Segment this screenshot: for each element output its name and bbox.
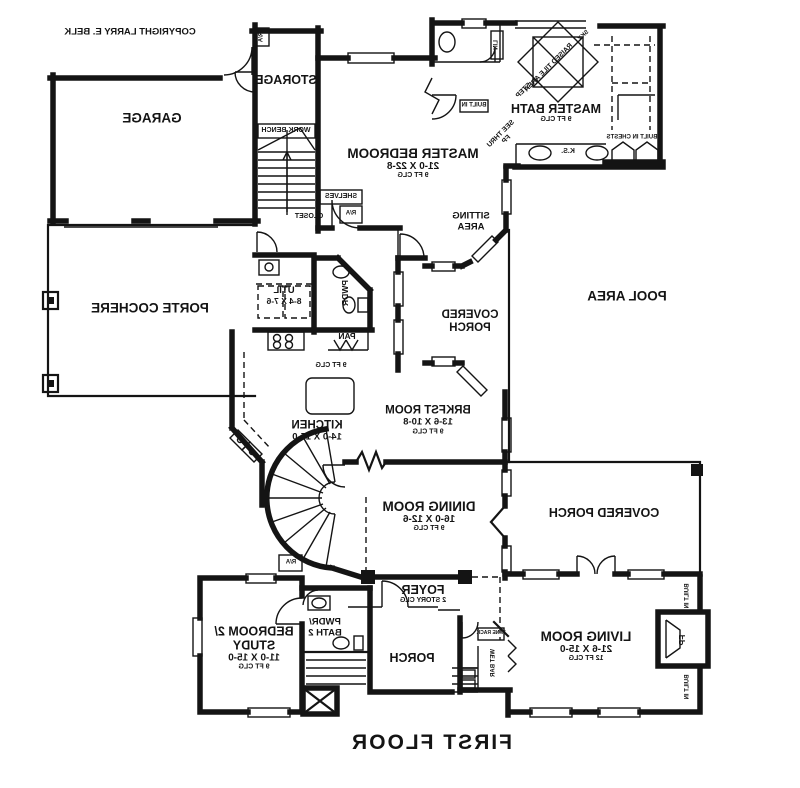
room-name: FOYER bbox=[400, 583, 446, 597]
label-bath2: PWDR/ BATH 2 bbox=[308, 617, 342, 638]
label-covered-porch-rear: COVERED PORCH bbox=[549, 506, 659, 520]
label-shelves: SHELVES bbox=[325, 193, 357, 201]
room-name: DINING ROOM bbox=[383, 499, 476, 514]
label-master-bedroom: MASTER BEDROOM 21-0 X 22-8 9 FT CLG bbox=[347, 146, 478, 180]
label-fp: FP bbox=[678, 635, 688, 646]
kitchen-counter bbox=[244, 352, 270, 448]
label-kitchen: KITCHEN 14-0 X 15-0 bbox=[291, 419, 342, 443]
label-kitchen-clg: 9 FT CLG bbox=[315, 362, 346, 370]
label-bedroom2: BEDROOM 2/ STUDY 11-0 X 15-0 9 FT CLG bbox=[214, 624, 293, 671]
label-brkfst: BRKFST ROOM 13-6 X 10-8 9 FT CLG bbox=[385, 404, 471, 435]
label-covered-porch-side: COVERED PORCH bbox=[442, 309, 499, 335]
label-master-bath: MASTER BATH 9 FT CLG bbox=[511, 102, 601, 124]
label-foyer: FOYER 2 STORY CLG bbox=[400, 583, 446, 605]
label-ra-storage: R/A bbox=[259, 32, 266, 42]
master-bath-walls bbox=[432, 20, 663, 167]
room-name: MASTER BEDROOM bbox=[347, 146, 478, 161]
room-name2: STUDY bbox=[214, 638, 293, 652]
room-name: BRKFST ROOM bbox=[385, 404, 471, 417]
label-ra-closet: R/A bbox=[346, 211, 356, 218]
room-clg: 12 FT CLG bbox=[541, 655, 632, 663]
master-bedroom-walls bbox=[318, 58, 435, 228]
master-closet-rods bbox=[594, 36, 655, 130]
sitting-line2: AREA bbox=[452, 222, 489, 233]
label-built-in-top: BUILT IN bbox=[685, 584, 692, 609]
kitchen-walls bbox=[232, 332, 262, 505]
room-dims: 11-0 X 15-0 bbox=[214, 652, 293, 663]
porch-line2: PORCH bbox=[442, 322, 499, 335]
room-name1: BEDROOM 2/ bbox=[214, 624, 293, 638]
room-clg: 9 FT CLG bbox=[383, 525, 476, 533]
label-built-in-chests: BUILT IN CHESTS bbox=[607, 135, 658, 142]
master-bedroom-details bbox=[332, 53, 439, 228]
porch-post bbox=[691, 464, 703, 476]
rear-porch-details bbox=[523, 556, 664, 579]
room-dims: 21-0 X 22-8 bbox=[347, 161, 478, 172]
room-name2: BATH 2 bbox=[308, 628, 342, 639]
floor-plan-sheet: COPYRIGHT LARRY E. BELK GARAGE STORAGE W… bbox=[0, 0, 800, 788]
label-porte-cochere: PORTE COCHERE bbox=[91, 300, 209, 315]
label-pan: PAN bbox=[338, 332, 355, 342]
room-clg: 9 FT CLG bbox=[385, 428, 471, 436]
room-clg: 2 STORY CLG bbox=[400, 597, 446, 605]
label-sitting-area: SITTING AREA bbox=[452, 211, 489, 232]
plan-title: FIRST FLOOR bbox=[350, 731, 512, 755]
room-name: LIVING ROOM bbox=[541, 629, 632, 644]
label-porch: PORCH bbox=[389, 651, 434, 665]
room-clg: 9 FT CLG bbox=[511, 116, 601, 124]
label-ra-stair: R/A bbox=[286, 560, 296, 567]
label-wine-rack: WINE RACK bbox=[477, 631, 506, 637]
room-dims: 14-0 X 15-0 bbox=[291, 432, 342, 443]
room-dims: 13-6 X 10-8 bbox=[385, 417, 471, 428]
label-pool-area: POOL AREA bbox=[587, 288, 667, 303]
label-living: LIVING ROOM 21-6 X 15-0 12 FT CLG bbox=[541, 629, 632, 663]
copyright-note: COPYRIGHT LARRY E. BELK bbox=[64, 28, 195, 39]
label-built-in-bottom: BUILT IN bbox=[685, 675, 692, 700]
label-garage: GARAGE bbox=[122, 110, 181, 125]
room-name: MASTER BATH bbox=[511, 102, 601, 116]
master-bath-details bbox=[432, 19, 658, 165]
room-dims: 21-6 X 15-0 bbox=[541, 644, 632, 655]
room-clg: 9 FT CLG bbox=[214, 664, 293, 672]
label-pwdr: PWDR bbox=[341, 280, 351, 306]
floorplan-linework bbox=[0, 0, 800, 788]
label-ks: K.S. bbox=[561, 148, 575, 156]
label-dining: DINING ROOM 16-0 X 12-6 9 FT CLG bbox=[383, 499, 476, 533]
label-work-bench: WORK BENCH bbox=[262, 127, 311, 135]
spiral-stair-treads bbox=[268, 429, 335, 571]
label-lin: LIN bbox=[494, 40, 501, 50]
room-dims: 16-0 X 12-6 bbox=[383, 514, 476, 525]
room-dims: 8-4 X 7-6 bbox=[267, 297, 302, 307]
room-clg: 9 FT CLG bbox=[347, 172, 478, 180]
label-storage: STORAGE bbox=[255, 73, 317, 87]
label-wet-bar: WET BAR bbox=[491, 649, 498, 677]
porch-line1: COVERED bbox=[442, 309, 499, 322]
label-built-in-bath: BUILT IN bbox=[462, 103, 487, 110]
label-closet: CLOSET bbox=[295, 213, 323, 221]
label-util: UTIL 8-4 X 7-6 bbox=[267, 286, 302, 306]
room-name: KITCHEN bbox=[291, 419, 342, 432]
